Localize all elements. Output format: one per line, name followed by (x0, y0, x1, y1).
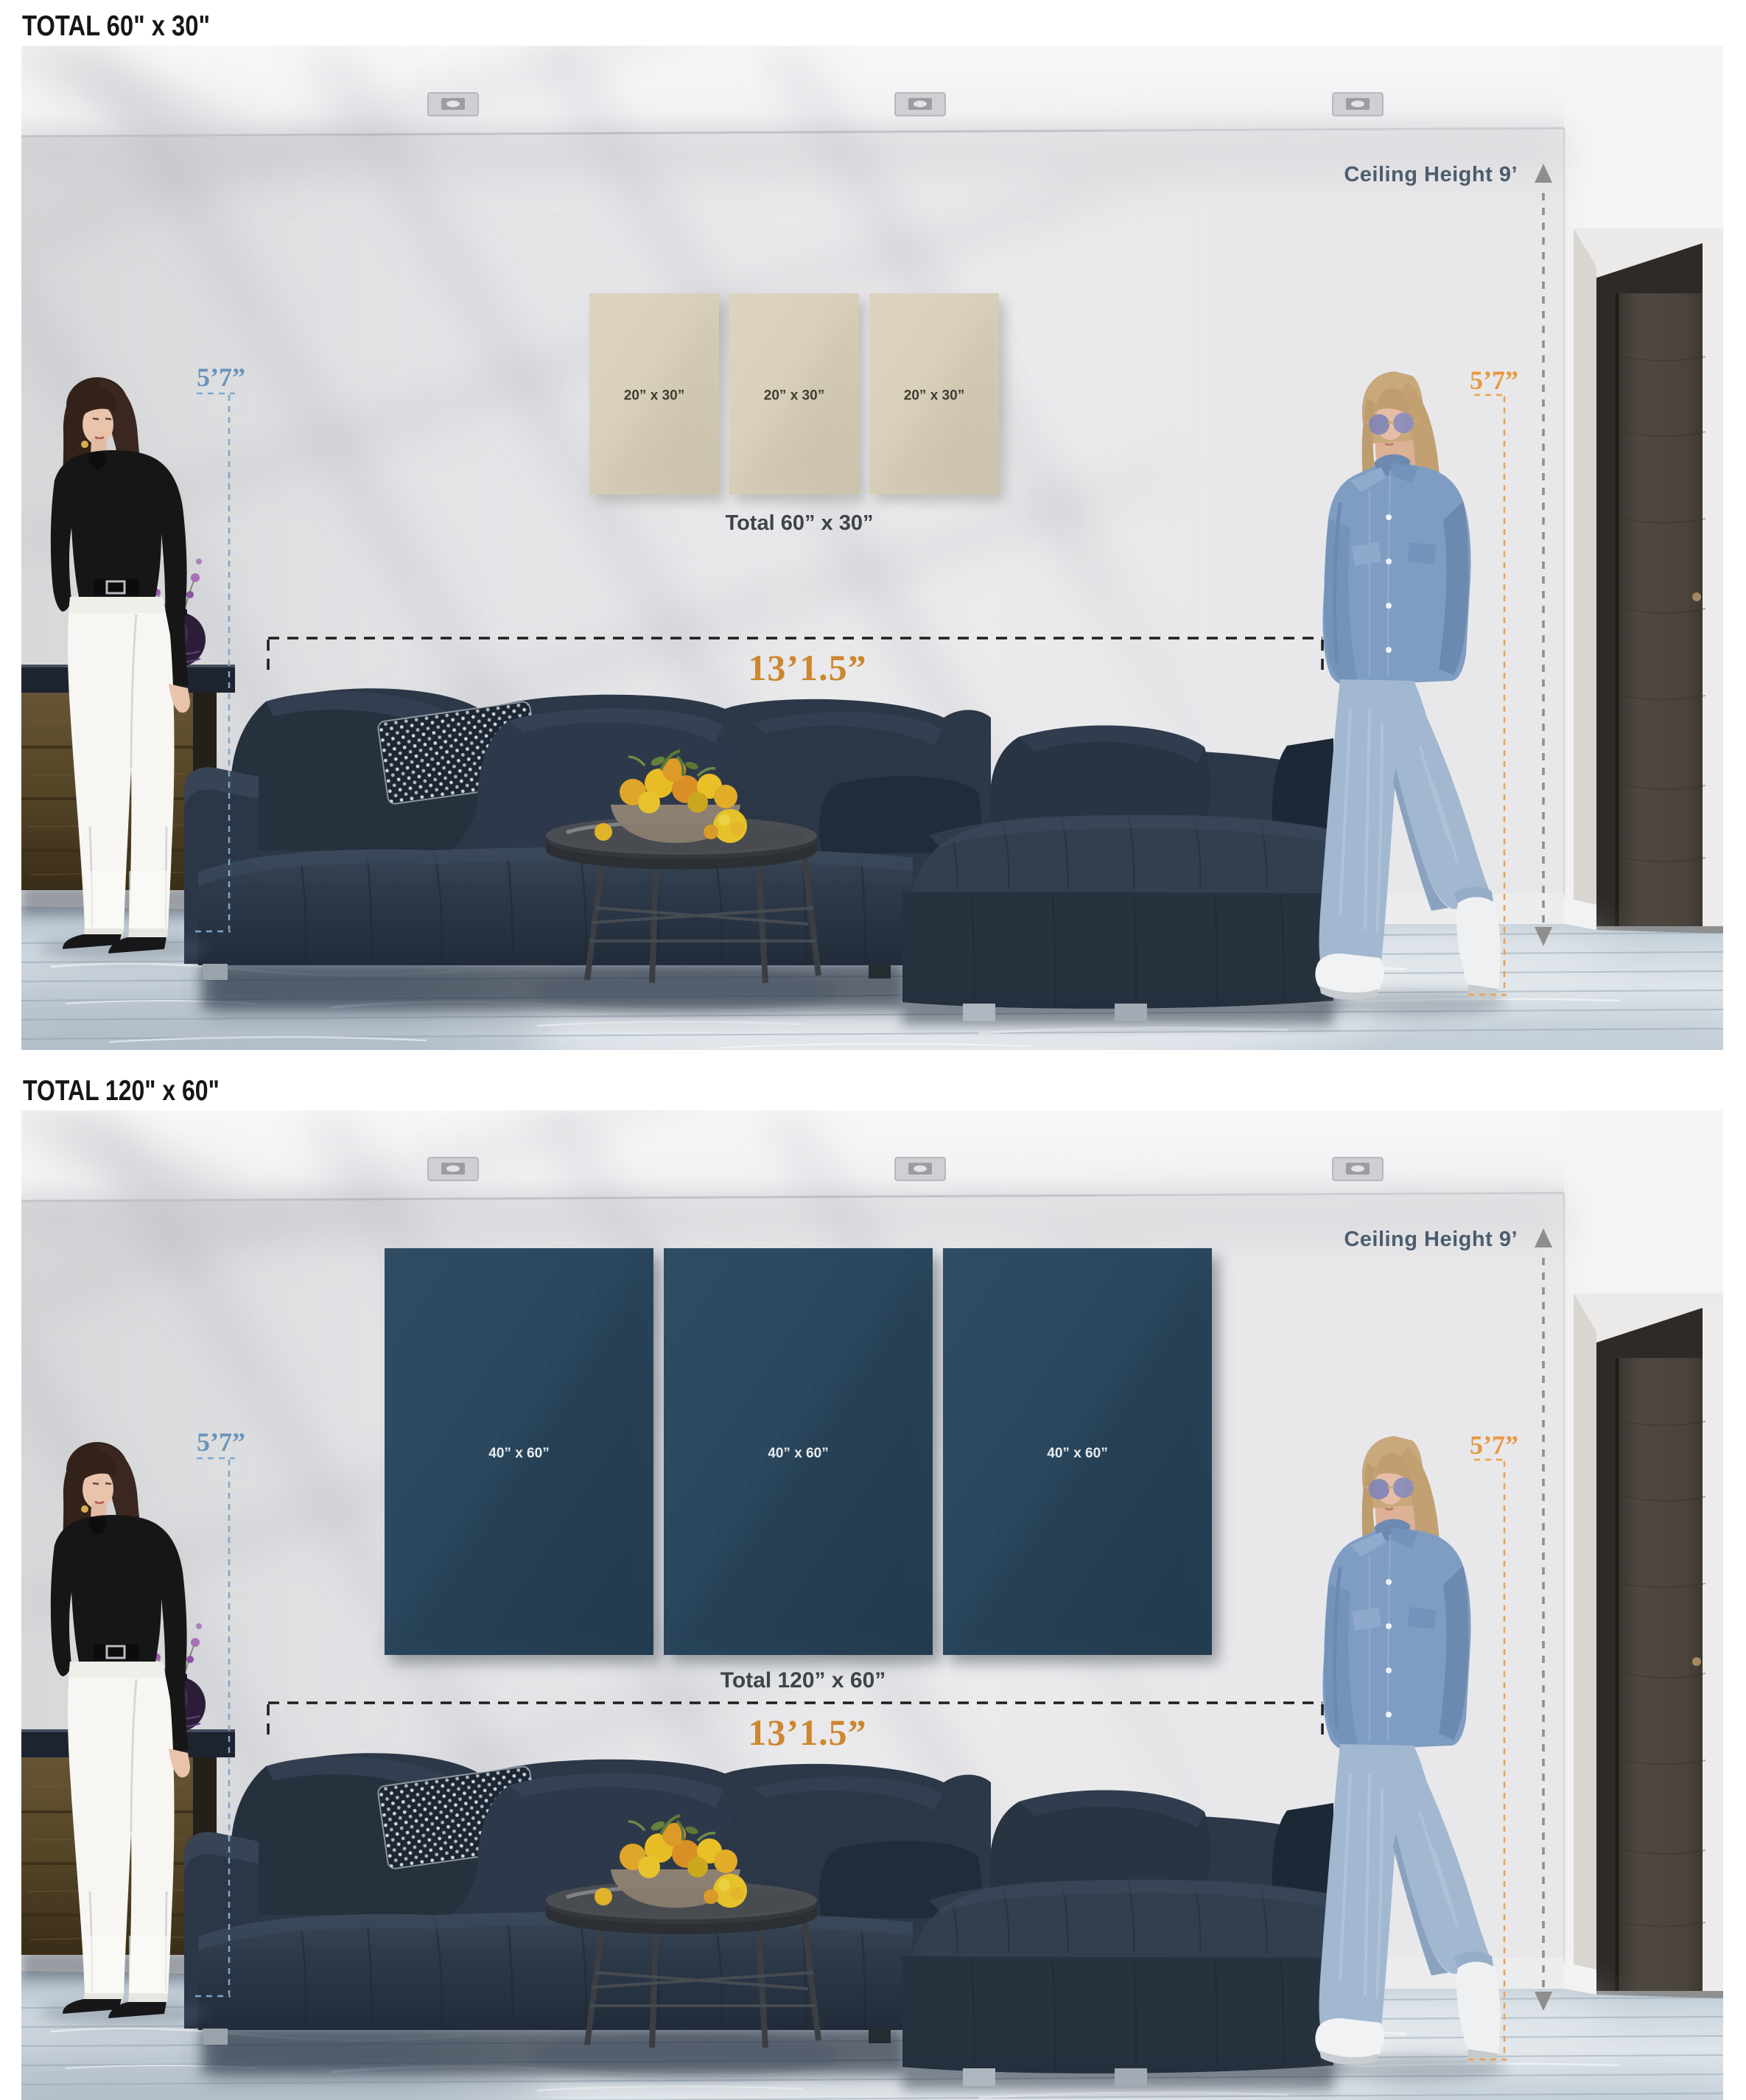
svg-text:5’7”: 5’7” (197, 363, 245, 392)
svg-text:5’7”: 5’7” (197, 1427, 245, 1457)
svg-text:20” x 30”: 20” x 30” (764, 388, 824, 404)
svg-text:5’7”: 5’7” (1470, 365, 1518, 395)
svg-text:40” x 60”: 40” x 60” (488, 1446, 549, 1461)
svg-text:Ceiling Height 9’: Ceiling Height 9’ (1344, 163, 1518, 186)
svg-text:13’1.5”: 13’1.5” (748, 647, 866, 688)
svg-text:Ceiling Height 9’: Ceiling Height 9’ (1344, 1228, 1518, 1251)
svg-text:5’7”: 5’7” (1470, 1430, 1518, 1460)
svg-text:40” x 60”: 40” x 60” (1047, 1446, 1107, 1461)
svg-text:Total 120” x 60”: Total 120” x 60” (721, 1668, 886, 1693)
svg-text:20” x 30”: 20” x 30” (904, 388, 964, 404)
svg-text:40” x 60”: 40” x 60” (768, 1446, 828, 1461)
svg-text:Total 60” x 30”: Total 60” x 30” (726, 511, 874, 535)
svg-text:20” x 30”: 20” x 30” (624, 388, 684, 404)
svg-text:13’1.5”: 13’1.5” (748, 1712, 866, 1753)
